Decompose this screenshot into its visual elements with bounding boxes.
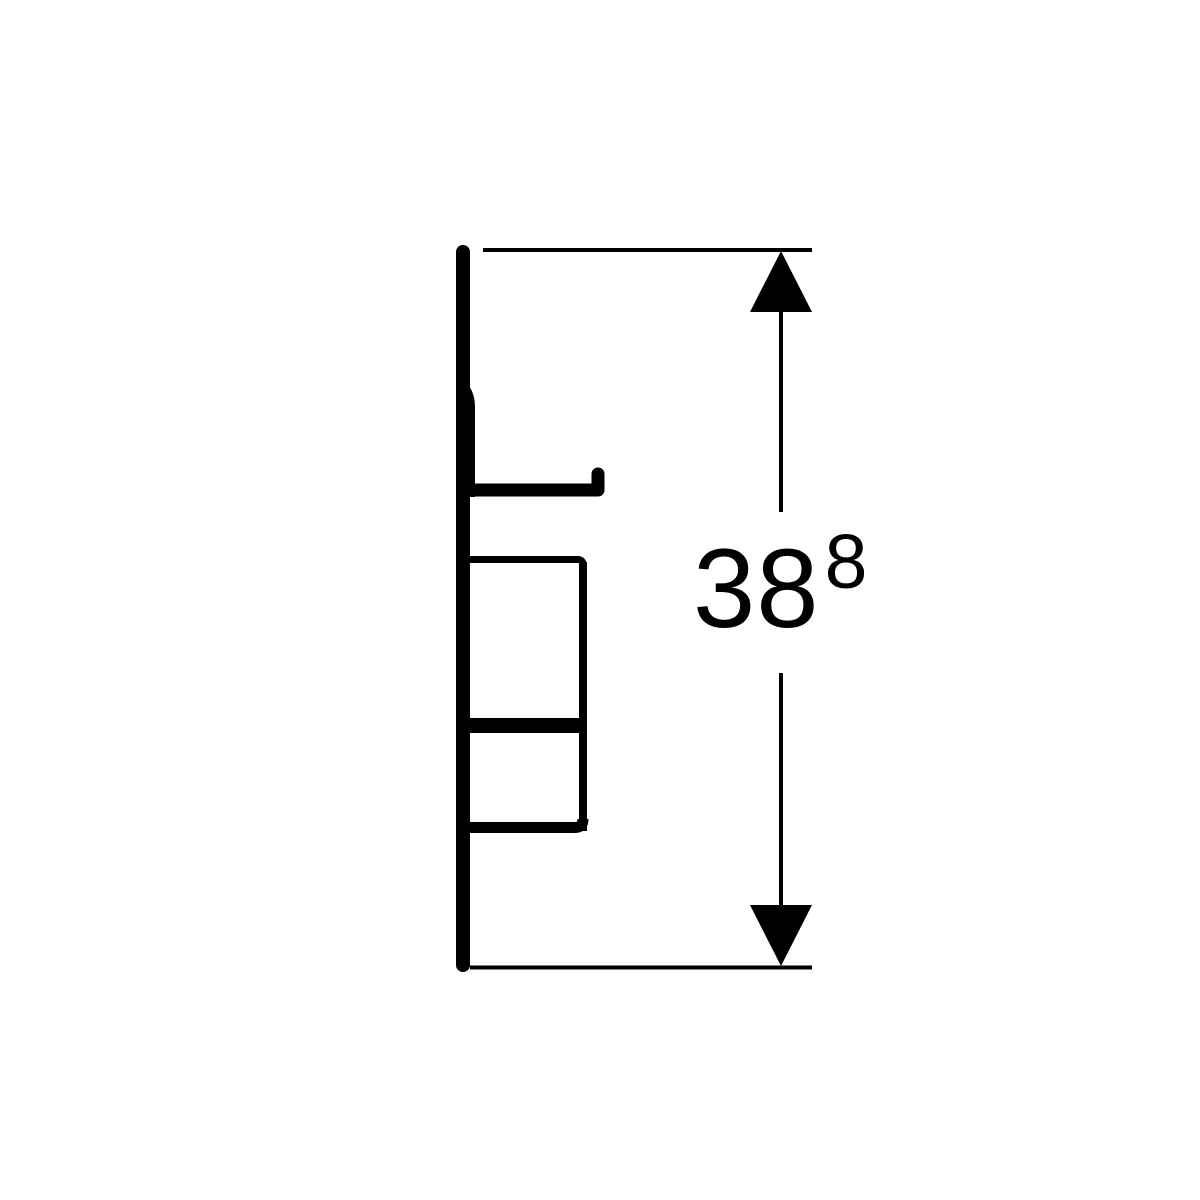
bracket-box-top-line xyxy=(468,560,583,566)
dimension-value: 38 xyxy=(693,526,820,651)
dimension-label: 388 xyxy=(693,519,868,651)
hook-profile xyxy=(470,474,598,490)
arrow-down-icon xyxy=(750,905,812,966)
bracket-box-bottom-line xyxy=(468,819,583,828)
technical-drawing: 388 xyxy=(0,0,1200,1200)
drawing-fills: 388 xyxy=(462,251,868,966)
wall-profile-step xyxy=(462,384,475,497)
technical-drawing-canvas: 388 xyxy=(0,0,1200,1200)
arrow-up-icon xyxy=(750,251,812,312)
dimension-superscript: 8 xyxy=(825,519,869,605)
